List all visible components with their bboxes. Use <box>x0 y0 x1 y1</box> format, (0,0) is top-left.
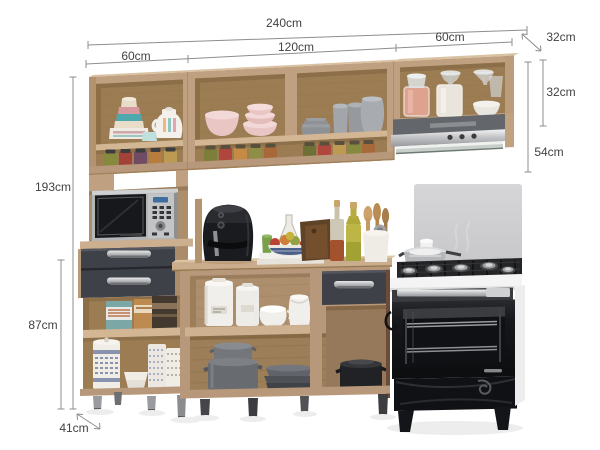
svg-text:32cm: 32cm <box>546 85 575 99</box>
svg-text:240cm: 240cm <box>266 16 302 30</box>
svg-text:193cm: 193cm <box>35 180 71 194</box>
svg-text:60cm: 60cm <box>435 30 464 44</box>
svg-text:60cm: 60cm <box>121 49 150 63</box>
svg-text:120cm: 120cm <box>278 40 314 54</box>
svg-text:87cm: 87cm <box>28 318 57 332</box>
svg-text:32cm: 32cm <box>546 30 575 44</box>
svg-text:41cm: 41cm <box>59 421 88 435</box>
svg-text:54cm: 54cm <box>534 145 563 159</box>
